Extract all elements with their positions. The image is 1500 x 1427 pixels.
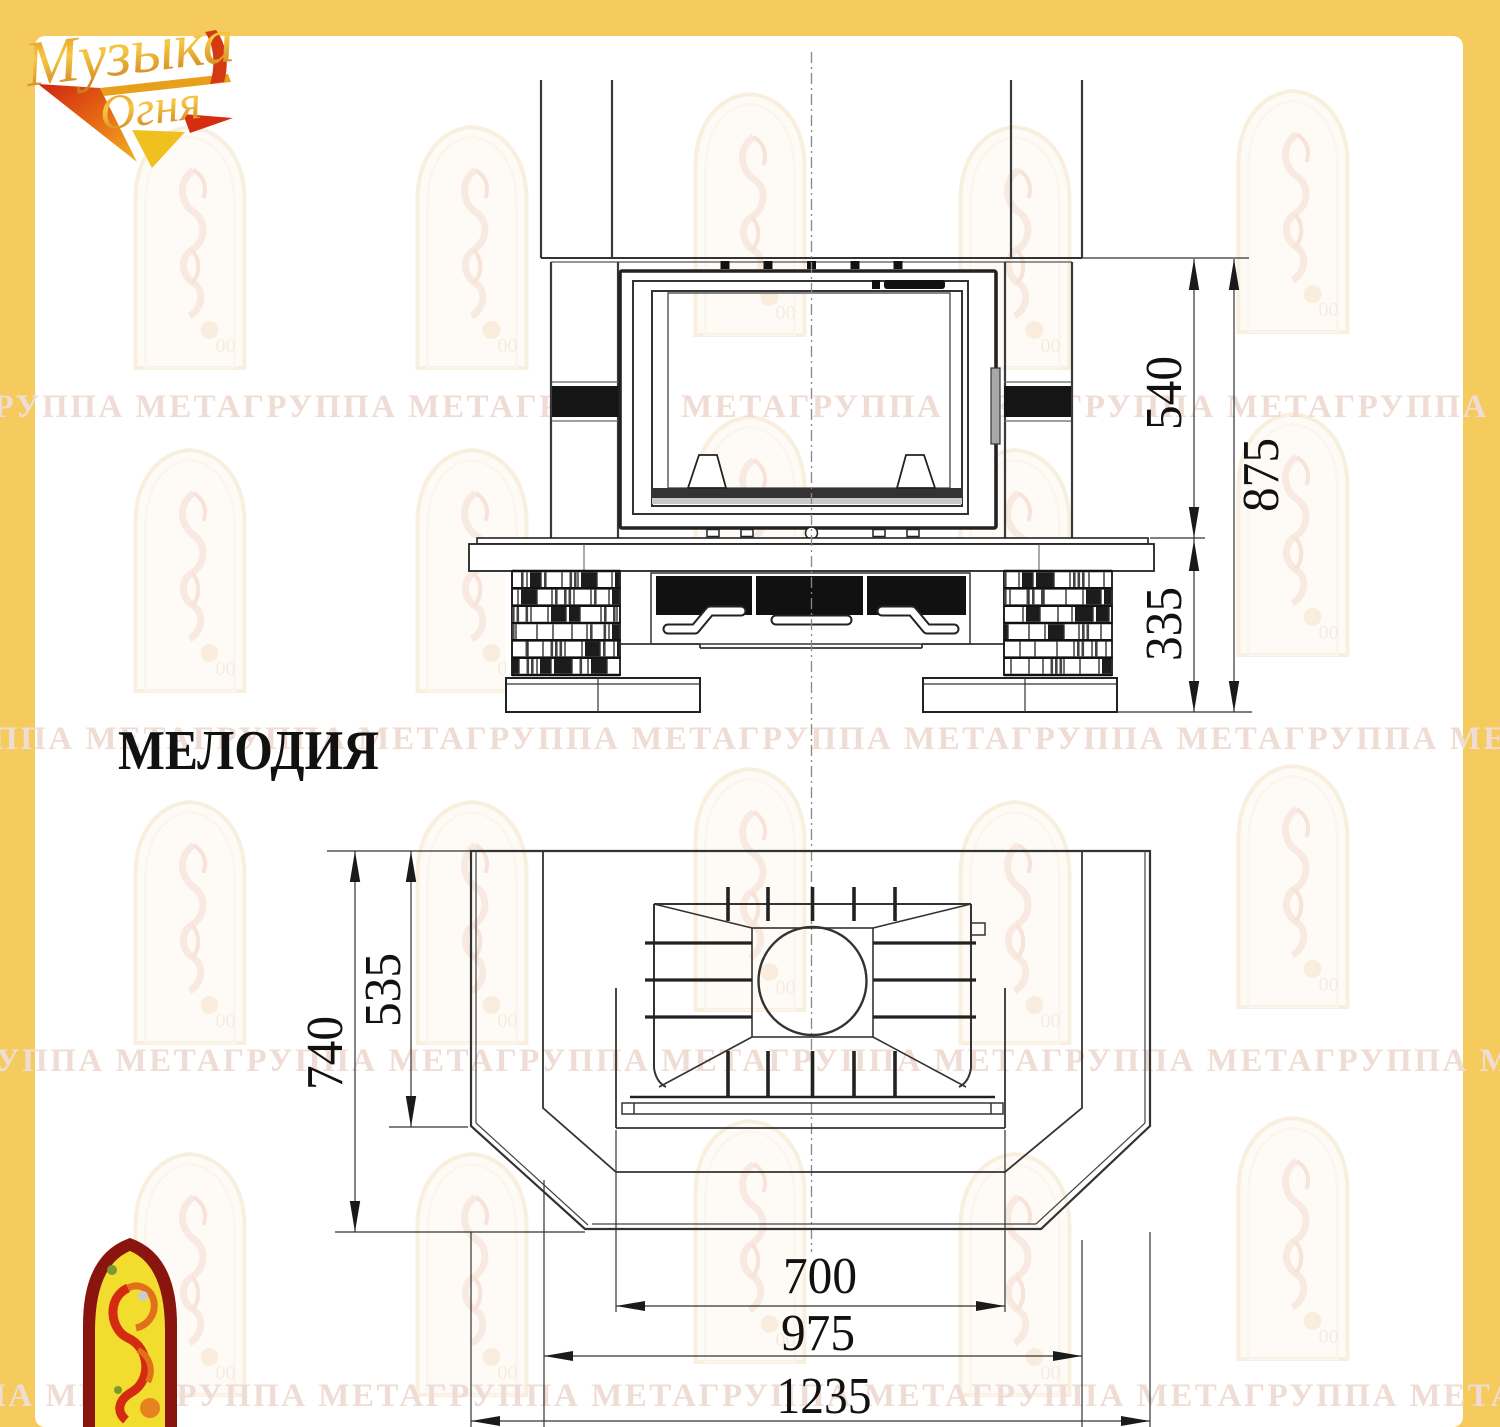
- svg-text:700: 700: [783, 1248, 857, 1305]
- svg-text:975: 975: [781, 1305, 855, 1362]
- svg-text:ГРУППА МЕТАГРУППА МЕТАГРУППА М: ГРУППА МЕТАГРУППА МЕТАГРУППА МЕТАГРУППА …: [0, 389, 1500, 425]
- svg-text:ГРУППА МЕТАГРУППА МЕТАГРУППА М: ГРУППА МЕТАГРУППА МЕТАГРУППА МЕТАГРУППА …: [0, 1378, 1500, 1414]
- svg-text:1235: 1235: [777, 1368, 872, 1425]
- svg-text:ГРУППА МЕТАГРУППА МЕТАГРУППА М: ГРУППА МЕТАГРУППА МЕТАГРУППА МЕТАГРУППА …: [0, 1043, 1500, 1079]
- svg-text:875: 875: [1233, 438, 1290, 512]
- svg-text:535: 535: [355, 953, 412, 1027]
- svg-text:МЕЛОДИЯ: МЕЛОДИЯ: [118, 720, 379, 782]
- svg-text:540: 540: [1136, 356, 1193, 430]
- svg-text:740: 740: [297, 1016, 354, 1090]
- svg-text:335: 335: [1136, 587, 1193, 661]
